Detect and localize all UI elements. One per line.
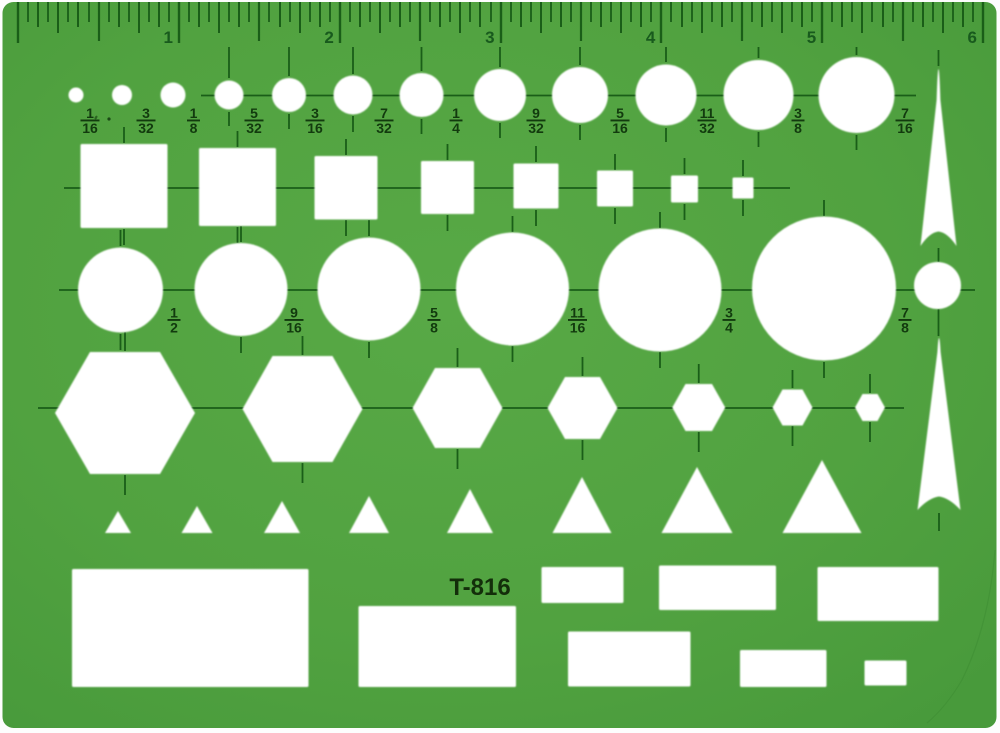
- svg-text:11: 11: [570, 305, 585, 321]
- svg-text:5: 5: [250, 105, 258, 121]
- svg-text:1: 1: [190, 105, 198, 121]
- svg-text:7: 7: [380, 105, 388, 121]
- svg-text:3: 3: [485, 28, 494, 47]
- svg-text:1: 1: [164, 28, 173, 47]
- svg-text:16: 16: [286, 320, 302, 336]
- svg-text:32: 32: [528, 120, 544, 136]
- svg-text:16: 16: [82, 120, 98, 136]
- svg-text:7: 7: [901, 105, 909, 121]
- svg-text:32: 32: [138, 120, 154, 136]
- svg-text:1: 1: [170, 305, 178, 321]
- svg-text:32: 32: [699, 120, 715, 136]
- svg-text:11: 11: [700, 105, 715, 121]
- svg-text:6: 6: [968, 28, 977, 47]
- svg-text:1: 1: [86, 105, 94, 121]
- svg-text:T-816: T-816: [449, 574, 510, 601]
- svg-text:2: 2: [170, 320, 178, 336]
- svg-text:1: 1: [452, 105, 460, 121]
- svg-text:9: 9: [532, 105, 540, 121]
- svg-text:3: 3: [794, 105, 802, 121]
- svg-text:8: 8: [794, 120, 802, 136]
- svg-text:8: 8: [190, 120, 198, 136]
- svg-text:8: 8: [430, 320, 438, 336]
- svg-text:16: 16: [570, 320, 586, 336]
- svg-text:4: 4: [646, 28, 656, 47]
- svg-text:8: 8: [901, 320, 909, 336]
- svg-text:32: 32: [376, 120, 392, 136]
- svg-text:16: 16: [612, 120, 628, 136]
- svg-text:3: 3: [725, 305, 733, 321]
- svg-text:5: 5: [430, 305, 438, 321]
- svg-text:32: 32: [246, 120, 262, 136]
- svg-text:5: 5: [616, 105, 624, 121]
- svg-text:9: 9: [290, 305, 298, 321]
- svg-text:4: 4: [725, 320, 733, 336]
- svg-text:16: 16: [897, 120, 913, 136]
- svg-text:5: 5: [807, 28, 816, 47]
- svg-text:4: 4: [452, 120, 460, 136]
- svg-text:2: 2: [324, 28, 333, 47]
- svg-text:3: 3: [142, 105, 150, 121]
- svg-text:16: 16: [307, 120, 323, 136]
- svg-text:3: 3: [311, 105, 319, 121]
- svg-text:7: 7: [901, 305, 909, 321]
